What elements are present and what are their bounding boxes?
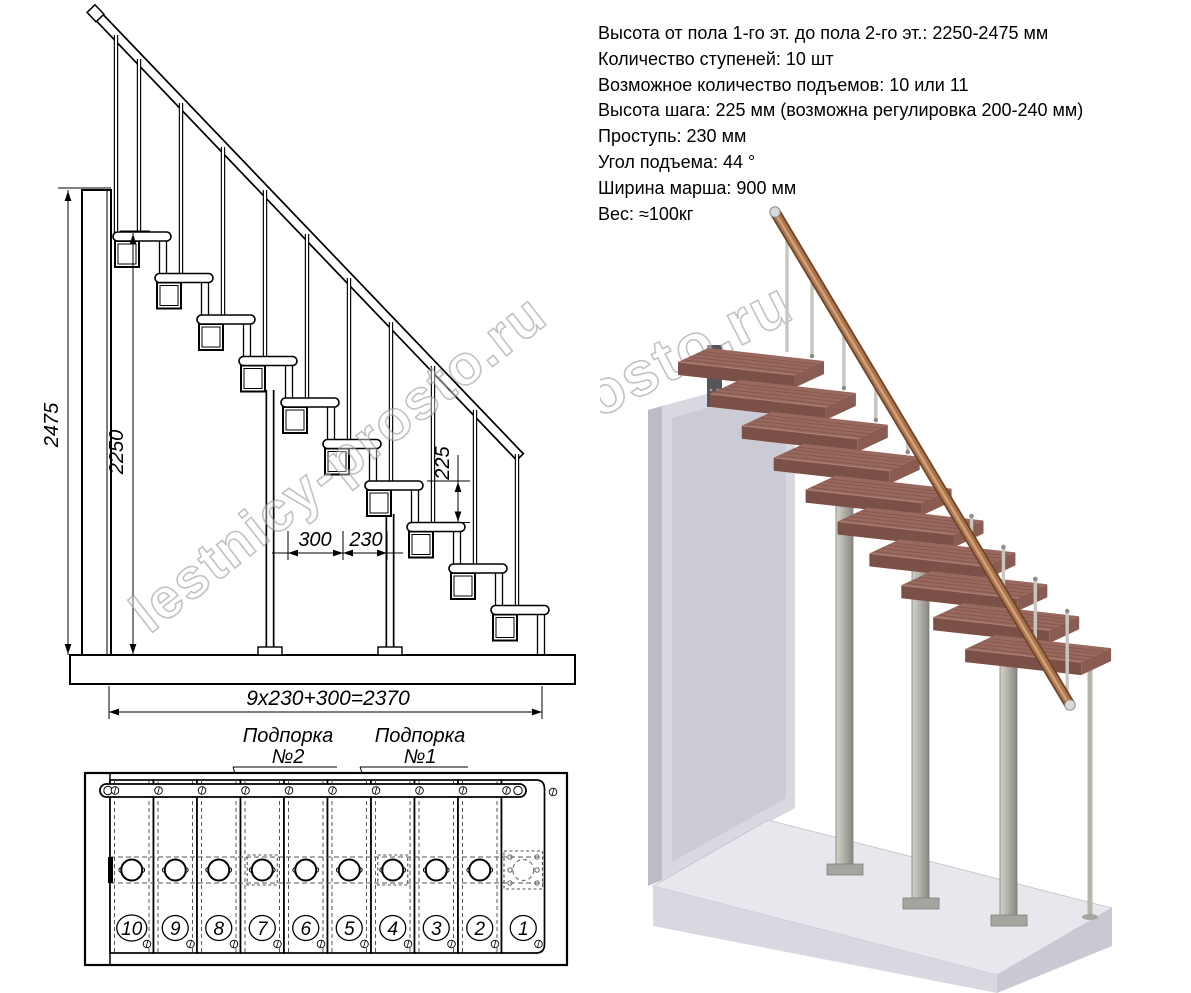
spec-floor-height: Высота от пола 1-го эт. до пола 2-го эт.… [598, 21, 1083, 47]
support2-label-line1: Подпорка [243, 725, 334, 747]
dimension-total-run: 9x230+300=2370 [109, 686, 542, 719]
step-number-9: 9 [170, 919, 181, 940]
support2-label-line2: №2 [272, 746, 305, 768]
plan-view-drawing: Подпорка №2 Подпорка №1 [0, 720, 600, 993]
support-column-3 [1000, 640, 1017, 923]
step-number-6: 6 [300, 919, 311, 940]
spec-width: Ширина марша: 900 мм [598, 176, 1083, 202]
step-number-4: 4 [387, 919, 398, 940]
spec-rise-count: Возможное количество подъемов: 10 или 11 [598, 73, 1083, 99]
spec-weight: Вес: ≈100кг [598, 202, 1083, 228]
support-column-2 [912, 568, 929, 906]
dim-total-run-label: 9x230+300=2370 [246, 687, 410, 710]
support1-label-line2: №1 [404, 746, 437, 768]
step-number-7: 7 [257, 919, 269, 940]
handrail-bottom-cap-3d [1065, 700, 1075, 710]
watermark-side: lestnicy-prosto.ru [118, 281, 558, 644]
step-number-10: 10 [121, 919, 143, 940]
step-number-3: 3 [431, 919, 442, 940]
spec-step-height: Высота шага: 225 мм (возможна регулировк… [598, 98, 1083, 124]
step-number-1: 1 [518, 919, 529, 940]
specifications-block: Высота от пола 1-го эт. до пола 2-го эт.… [598, 21, 1083, 227]
step-number-2: 2 [473, 919, 485, 940]
column-feet [258, 647, 402, 655]
dim-2475-label: 2475 [41, 402, 63, 448]
dim-2250-label: 2250 [106, 430, 128, 476]
spec-tread-depth: Проступь: 230 мм [598, 124, 1083, 150]
dim-300-label: 300 [298, 529, 331, 551]
plan-handrail [100, 784, 557, 797]
dim-225-label: 225 [432, 445, 454, 480]
dim-230-label: 230 [348, 529, 382, 551]
spec-step-count: Количество ступеней: 10 шт [598, 47, 1083, 73]
support-column-1 [836, 500, 853, 870]
support1-label-line1: Подпорка [375, 725, 466, 747]
step-number-5: 5 [344, 919, 355, 940]
side-wall-post [82, 190, 111, 655]
step-number-8: 8 [213, 919, 224, 940]
spec-angle: Угол подъема: 44 ° [598, 150, 1083, 176]
side-view-drawing: 2475 2250 225 3 [0, 0, 600, 720]
base-plate [70, 655, 575, 684]
stair-spec-sheet: Высота от пола 1-го эт. до пола 2-го эт.… [0, 0, 1191, 993]
